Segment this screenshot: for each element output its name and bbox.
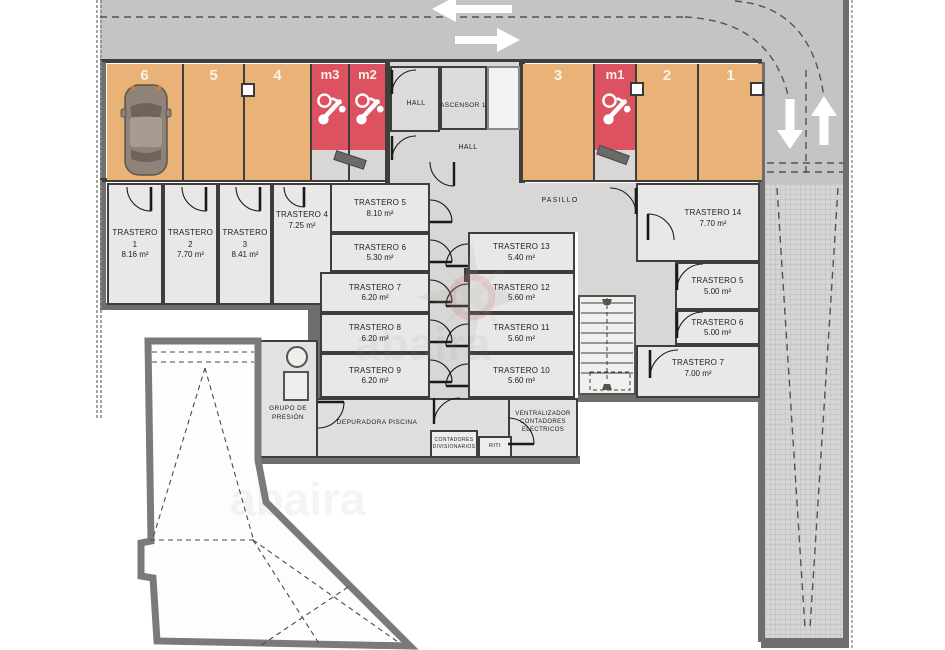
space-number: 2 bbox=[637, 67, 697, 84]
room-trastero-9: TRASTERO 9 6.20 m² bbox=[320, 353, 430, 398]
parking-space-6: 6 bbox=[107, 64, 182, 180]
room-area: 5.60 m² bbox=[508, 293, 535, 303]
room-trastero-14: TRASTERO 14 7.70 m² bbox=[636, 183, 760, 262]
contadores-label: CONTADORES DIVISIONARIOS bbox=[431, 437, 477, 451]
pasillo-corridor bbox=[468, 183, 636, 232]
road bbox=[100, 0, 849, 62]
room-area: 7.25 m² bbox=[288, 221, 315, 231]
ramp-bottom-wall bbox=[761, 638, 848, 648]
depuradora-label: DEPURADORA PISCINA bbox=[322, 419, 432, 426]
room-area: 5.00 m² bbox=[704, 287, 731, 297]
room-name: TRASTERO 8 bbox=[349, 322, 401, 334]
ventralizador-label: VENTRALIZADOR CONTADORES ELECTRICOS bbox=[511, 410, 575, 434]
space-number: 6 bbox=[107, 67, 182, 84]
room-area: 7.70 m² bbox=[699, 219, 726, 229]
parking-space-3: 3 bbox=[523, 64, 593, 180]
hall-mid-label: HALL bbox=[448, 144, 488, 151]
room-name: TRASTERO 6 bbox=[691, 317, 743, 329]
stairwell bbox=[578, 295, 636, 395]
room-trastero-2: TRASTERO 2 7.70 m² bbox=[163, 183, 218, 305]
elevator-label: ASCENSOR 1 bbox=[438, 102, 488, 109]
pressure-tank-rect bbox=[283, 371, 309, 401]
parking-space-4: 4 bbox=[243, 64, 310, 180]
room-trastero-7-right: TRASTERO 7 7.00 m² bbox=[636, 345, 760, 398]
room-area: 6.20 m² bbox=[361, 334, 388, 344]
space-number: m3 bbox=[312, 67, 348, 82]
space-number: 4 bbox=[245, 67, 310, 84]
motorcycle-icon bbox=[316, 90, 346, 130]
room-name: TRASTERO 5 bbox=[691, 275, 743, 287]
space-number: m2 bbox=[350, 67, 385, 82]
room-area: 8.10 m² bbox=[366, 209, 393, 219]
grupo-presion-label: GRUPO DE PRESIÓN bbox=[262, 405, 314, 423]
riti-label: RITI bbox=[479, 443, 511, 450]
room-area: 5.40 m² bbox=[508, 253, 535, 263]
room-name: TRASTERO 7 bbox=[672, 357, 724, 369]
space-number: 3 bbox=[523, 67, 593, 84]
room-trastero-3: TRASTERO 3 8.41 m² bbox=[218, 183, 272, 305]
room-trastero-5: TRASTERO 5 8.10 m² bbox=[330, 183, 430, 233]
room-name: TRASTERO 4 bbox=[276, 209, 328, 221]
room-name: TRASTERO 2 bbox=[165, 227, 216, 250]
room-area: 7.70 m² bbox=[177, 250, 204, 260]
hall-upper-label: HALL bbox=[400, 100, 432, 107]
stair-landing bbox=[578, 232, 636, 295]
room-area: 5.30 m² bbox=[366, 253, 393, 263]
room-trastero-1: TRASTERO 1 8.16 m² bbox=[107, 183, 163, 305]
room-trastero-8: TRASTERO 8 6.20 m² bbox=[320, 313, 430, 353]
central-corridor bbox=[430, 183, 468, 398]
room-area: 6.20 m² bbox=[361, 376, 388, 386]
room-trastero-11: TRASTERO 11 5.60 m² bbox=[468, 313, 575, 353]
space-number: 5 bbox=[184, 67, 243, 84]
room-trastero-6-right: TRASTERO 6 5.00 m² bbox=[675, 310, 760, 345]
room-area: 6.20 m² bbox=[361, 293, 388, 303]
room-name: TRASTERO 5 bbox=[354, 197, 406, 209]
room-area: 5.00 m² bbox=[704, 328, 731, 338]
room-name: TRASTERO 7 bbox=[349, 282, 401, 294]
ramp-upper bbox=[765, 62, 845, 184]
floor-plan: HALL ASCENSOR 1 HALL 6 5 4 m3 bbox=[0, 0, 945, 650]
building-left-wall bbox=[100, 62, 106, 308]
elevator-room bbox=[440, 66, 487, 130]
room-name: TRASTERO 1 bbox=[109, 227, 161, 250]
room-trastero-7: TRASTERO 7 6.20 m² bbox=[320, 272, 430, 313]
room-name: TRASTERO 13 bbox=[493, 241, 550, 253]
room-trastero-13: TRASTERO 13 5.40 m² bbox=[468, 232, 575, 272]
parking-space-5: 5 bbox=[182, 64, 243, 180]
room-trastero-10: TRASTERO 10 5.60 m² bbox=[468, 353, 575, 398]
electric-box bbox=[750, 82, 764, 96]
car-icon bbox=[120, 83, 172, 177]
room-name: TRASTERO 6 bbox=[354, 242, 406, 254]
room-trastero-6: TRASTERO 6 5.30 m² bbox=[330, 233, 430, 272]
room-area: 8.16 m² bbox=[121, 250, 148, 260]
ramp-slope bbox=[765, 184, 845, 640]
pressure-tank-circle bbox=[286, 346, 308, 368]
room-name: TRASTERO 9 bbox=[349, 365, 401, 377]
electric-box bbox=[630, 82, 644, 96]
room-area: 5.60 m² bbox=[508, 376, 535, 386]
room-area: 7.00 m² bbox=[684, 369, 711, 379]
room-name: TRASTERO 12 bbox=[493, 282, 550, 294]
motorcycle-icon bbox=[601, 90, 631, 130]
elevator-shaft bbox=[487, 66, 520, 130]
parking-space-m1: m1 bbox=[593, 64, 635, 180]
room-name: TRASTERO 11 bbox=[493, 322, 549, 334]
parking-space-2: 2 bbox=[635, 64, 697, 180]
space-number: m1 bbox=[595, 67, 635, 82]
pasillo-label: PASILLO bbox=[528, 197, 592, 204]
electric-box bbox=[241, 83, 255, 97]
watermark-text: abaira bbox=[230, 473, 366, 525]
motorcycle-icon bbox=[354, 90, 384, 130]
room-area: 8.41 m² bbox=[231, 250, 258, 260]
room-trastero-12: TRASTERO 12 5.60 m² bbox=[468, 272, 575, 313]
room-name: TRASTERO 14 bbox=[685, 207, 742, 219]
room-name: TRASTERO 3 bbox=[220, 227, 270, 250]
room-name: TRASTERO 10 bbox=[493, 365, 550, 377]
ramp-right-wall bbox=[843, 0, 849, 648]
room-area: 5.60 m² bbox=[508, 334, 535, 344]
room-trastero-5-right: TRASTERO 5 5.00 m² bbox=[675, 262, 760, 310]
hall-upper-room bbox=[390, 66, 440, 132]
